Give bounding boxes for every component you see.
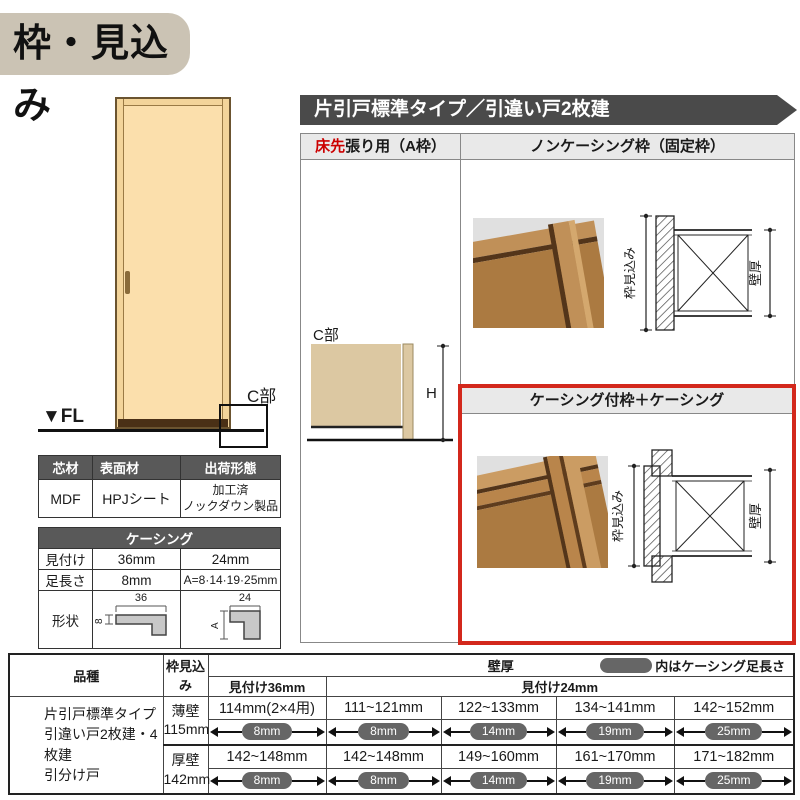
casing-profile-24-diagram: 24 A <box>188 591 273 645</box>
material-shipping-value: 加工済 ノックダウン製品 <box>181 480 281 518</box>
c-section-label: C部 <box>247 382 276 407</box>
spec-range-cell: 149~160mm <box>441 745 556 768</box>
casing-row-label: 形状 <box>39 591 93 649</box>
noncasing-header: ノンケーシング枠（固定枠） <box>461 134 794 160</box>
casing-section-header: ケーシング付枠＋ケーシング <box>462 388 792 414</box>
spec-thin-wall: 薄壁 115mm <box>163 696 208 745</box>
catalog-page: 枠・見込み ▼FL C部 芯材 表面材 出荷形態 MDF HPJシート 加工済 … <box>0 0 800 800</box>
casing-leg-24: A=8·14·19·25mm <box>181 570 281 591</box>
spec-range-cell: 142~152mm <box>674 696 794 719</box>
spec-header-wall-thickness: 壁厚 内はケーシング足長さ <box>208 654 794 676</box>
door-bottom-rail <box>118 419 228 427</box>
a-frame-section-diagram: H <box>305 340 460 450</box>
material-header-surface: 表面材 <box>93 456 181 480</box>
spec-range-cell: 134~141mm <box>556 696 674 719</box>
spec-thick-wall: 厚壁 142mm <box>163 745 208 794</box>
svg-text:枠見込み: 枠見込み <box>624 247 637 299</box>
svg-text:枠見込み: 枠見込み <box>612 490 625 542</box>
section-banner: 片引戸標準タイプ／引違い戸2枚建 <box>300 95 797 125</box>
door-elevation-diagram <box>115 97 231 429</box>
spec-range-cell: 114mm(2×4用) <box>208 696 326 719</box>
a-frame-header: 床先張り用（A枠） <box>301 134 460 160</box>
spec-leg-cell: 14mm <box>441 719 556 745</box>
spec-leg-cell: 19mm <box>556 768 674 794</box>
casing-mitsuke-24: 24mm <box>181 549 281 570</box>
svg-text:36: 36 <box>135 592 147 604</box>
floor-level-label: ▼FL <box>42 406 84 428</box>
svg-text:A: A <box>210 622 221 629</box>
svg-text:壁厚: 壁厚 <box>748 260 763 286</box>
casing-section-diagram: 枠見込み 壁厚 <box>612 446 782 586</box>
spec-leg-cell: 8mm <box>326 719 441 745</box>
door-handle <box>125 271 130 294</box>
casing-leg-legend: 内はケーシング足長さ <box>600 655 785 676</box>
svg-text:24: 24 <box>239 592 251 604</box>
svg-text:壁厚: 壁厚 <box>748 503 763 529</box>
spec-leg-cell: 8mm <box>208 768 326 794</box>
page-title: 枠・見込み <box>0 13 190 75</box>
spec-leg-cell: 25mm <box>674 719 794 745</box>
spec-subheader-24: 見付け24mm <box>326 676 794 696</box>
spec-leg-cell: 8mm <box>208 719 326 745</box>
material-header-shipping: 出荷形態 <box>181 456 281 480</box>
spec-leg-cell: 8mm <box>326 768 441 794</box>
svg-text:8: 8 <box>94 618 105 624</box>
spec-header-frame-depth: 枠見込み <box>163 654 208 696</box>
casing-row-label: 見付け <box>39 549 93 570</box>
spec-range-cell: 142~148mm <box>326 745 441 768</box>
wall-thickness-spec-table: 品種 枠見込み 壁厚 内はケーシング足長さ 見付け36mm 見付け24mm 片引… <box>8 653 795 795</box>
casing-shape-36-cell: 36 8 <box>93 591 181 649</box>
spec-range-cell: 142~148mm <box>208 745 326 768</box>
spec-product-types: 片引戸標準タイプ 引違い戸2枚建・4枚建 引分け戸 <box>9 696 163 794</box>
spec-range-cell: 171~182mm <box>674 745 794 768</box>
spec-range-cell: 111~121mm <box>326 696 441 719</box>
svg-text:H: H <box>426 385 437 402</box>
door-right-stile <box>222 99 229 427</box>
spec-leg-cell: 25mm <box>674 768 794 794</box>
casing-profile-36-diagram: 36 8 <box>94 591 179 645</box>
frame-type-panel: 床先張り用（A枠） ノンケーシング枠（固定枠） C部 H <box>300 133 795 643</box>
spec-leg-cell: 14mm <box>441 768 556 794</box>
legend-pill-icon <box>600 658 652 673</box>
casing-shape-24-cell: 24 A <box>181 591 281 649</box>
casing-row-label: 足長さ <box>39 570 93 591</box>
spec-header-product: 品種 <box>9 654 163 696</box>
noncasing-frame-photo <box>473 218 604 328</box>
casing-table-title: ケーシング <box>39 528 281 549</box>
material-surface-value: HPJシート <box>93 480 181 518</box>
spec-range-cell: 122~133mm <box>441 696 556 719</box>
material-table: 芯材 表面材 出荷形態 MDF HPJシート 加工済 ノックダウン製品 <box>38 455 281 518</box>
a-frame-header-red: 床先 <box>315 138 345 155</box>
material-core-value: MDF <box>39 480 93 518</box>
casing-frame-photo <box>477 456 608 568</box>
casing-leg-36: 8mm <box>93 570 181 591</box>
a-frame-header-rest: 張り用（A枠） <box>345 138 446 155</box>
door-top-rail <box>117 99 229 106</box>
door-left-stile <box>117 99 124 427</box>
c-section-callout-box <box>219 404 268 448</box>
casing-table: ケーシング 見付け 36mm 24mm 足長さ 8mm A=8·14·19·25… <box>38 527 281 649</box>
noncasing-section-diagram: 枠見込み 壁厚 <box>624 208 779 336</box>
spec-leg-cell: 19mm <box>556 719 674 745</box>
spec-subheader-36: 見付け36mm <box>208 676 326 696</box>
material-header-core: 芯材 <box>39 456 93 480</box>
casing-section-highlight: ケーシング付枠＋ケーシング <box>458 384 796 645</box>
casing-mitsuke-36: 36mm <box>93 549 181 570</box>
spec-range-cell: 161~170mm <box>556 745 674 768</box>
